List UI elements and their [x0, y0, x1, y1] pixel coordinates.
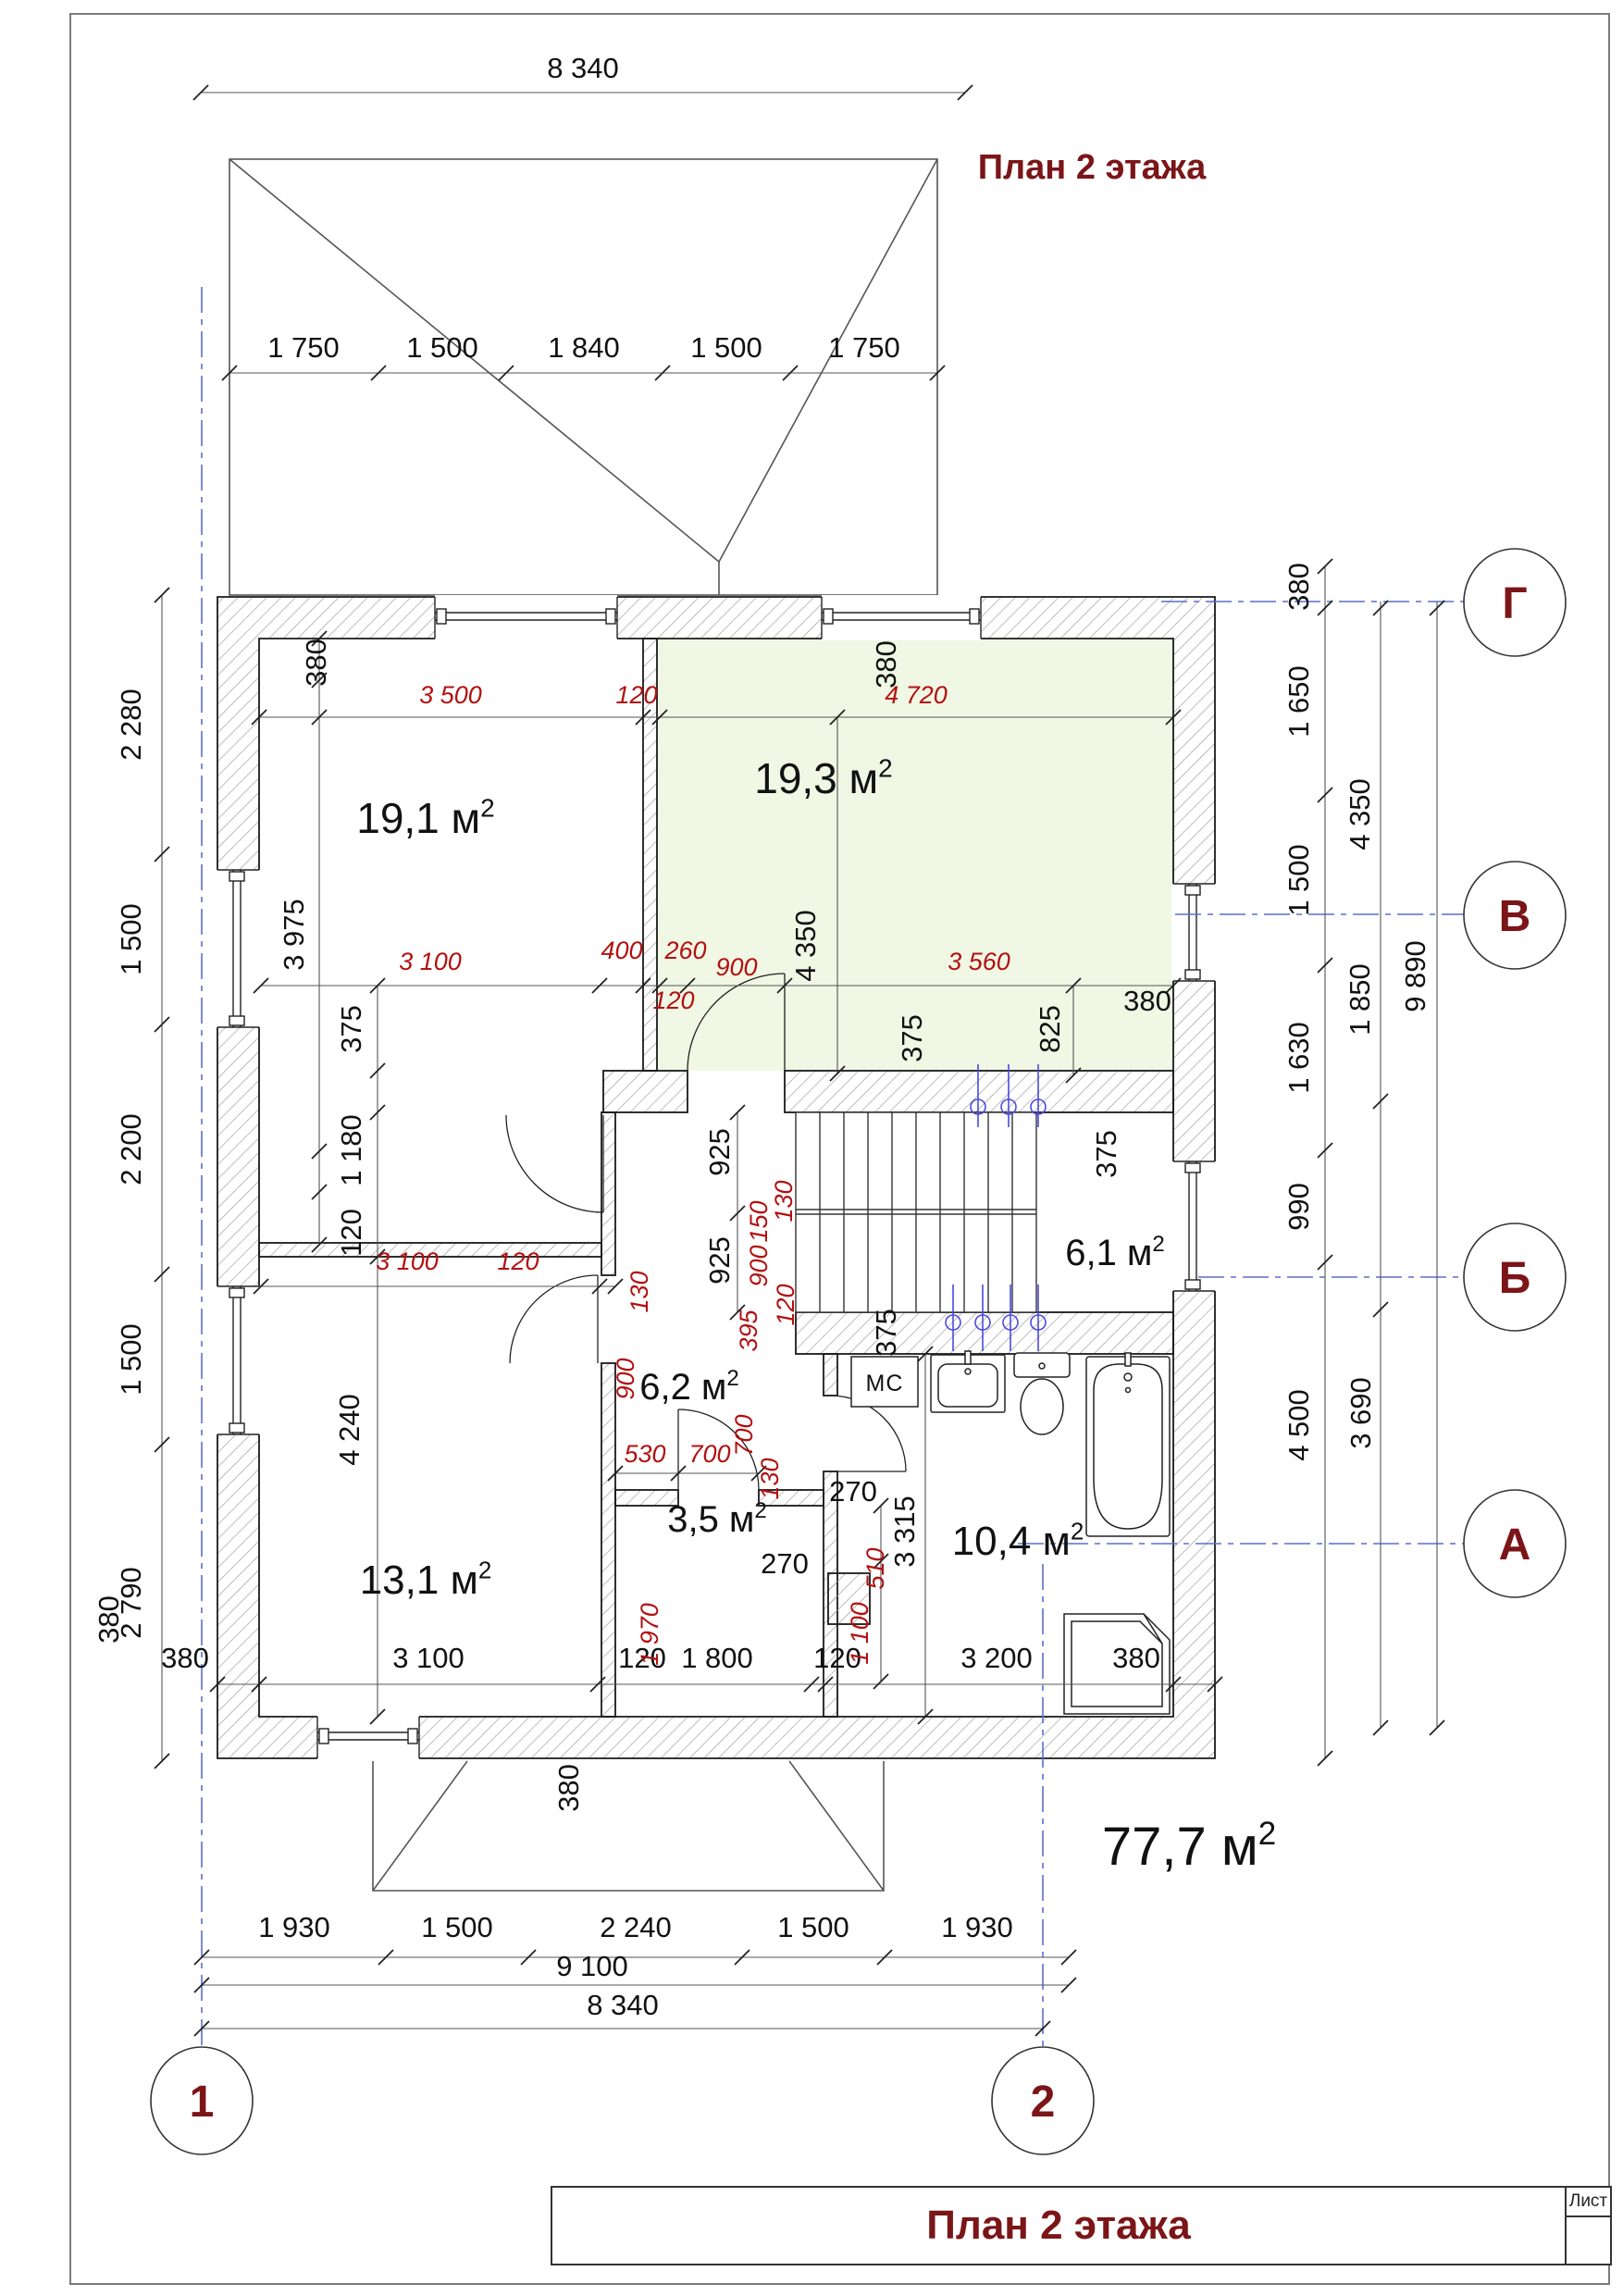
partition-wall — [601, 1363, 615, 1717]
dim-label-red: 120 — [772, 1284, 799, 1325]
dim-label-red: 510 — [861, 1547, 889, 1589]
dim-label: 1 500 — [421, 1911, 493, 1943]
title-block-title: План 2 этажа — [552, 2188, 1565, 2264]
washing-machine-label: МС — [866, 1371, 904, 1396]
dim-label: 375 — [335, 1005, 367, 1053]
window — [437, 609, 446, 624]
dim-label: 4 500 — [1282, 1389, 1315, 1461]
dim-label: 1 500 — [115, 903, 147, 975]
dim-label: 1 500 — [690, 331, 762, 364]
dim-label: 1 930 — [941, 1911, 1013, 1943]
dim-label-red: 530 — [624, 1440, 665, 1468]
dim-label: 8 340 — [587, 1989, 659, 2021]
dim-label-red: 3 100 — [376, 1247, 439, 1275]
dim-label-red: 130 — [756, 1458, 784, 1499]
dim-label: 1 500 — [777, 1911, 849, 1943]
dim-label: 1 630 — [1282, 1022, 1315, 1094]
dim-label: 375 — [896, 1014, 928, 1062]
dim-label-red: 1 100 — [846, 1602, 873, 1665]
dim-label-red: 400 — [601, 937, 642, 964]
dim-label: 9 100 — [556, 1950, 628, 1982]
dim-label-red: 120 — [615, 681, 657, 709]
page-title: План 2 этажа — [944, 148, 1240, 188]
dim-label: 380 — [161, 1642, 209, 1674]
dim-label-red: 900 — [612, 1358, 639, 1399]
dim-label-red: 150 — [745, 1200, 773, 1242]
toilet — [1014, 1353, 1070, 1434]
dim-label-red: 3 500 — [419, 681, 482, 709]
window — [1185, 970, 1200, 979]
window — [216, 1286, 261, 1434]
door-arc — [510, 1275, 598, 1363]
dim-label-red: 1 970 — [636, 1603, 663, 1666]
dim-label-red: 120 — [497, 1247, 539, 1275]
title-block-sheet-cell: Лист — [1565, 2188, 1610, 2264]
dim-label: 380 — [93, 1595, 125, 1644]
dim-label: 4 350 — [789, 910, 822, 982]
dim-label: 375 — [1090, 1130, 1122, 1178]
sheet-label: Лист — [1567, 2188, 1610, 2217]
room-area-label: 6,1 м2 — [1065, 1232, 1165, 1273]
window — [1171, 884, 1217, 981]
dim-label-red: 900 — [745, 1245, 773, 1286]
dim-label: 380 — [1112, 1642, 1160, 1674]
room-area-label: 77,7 м2 — [1102, 1816, 1276, 1877]
window — [824, 609, 833, 624]
dim-label: 1 930 — [258, 1911, 330, 1943]
dim-label: 380 — [1123, 985, 1171, 1017]
dim-label: 3 200 — [960, 1642, 1033, 1674]
window — [435, 595, 617, 640]
floor-plan-drawing: 8 3401 7501 5001 8401 5001 7502 2801 500… — [0, 0, 1623, 2296]
dim-label: 380 — [300, 639, 332, 687]
dim-label: 1 800 — [681, 1642, 753, 1674]
dim-label: 8 340 — [547, 52, 619, 84]
staircase — [796, 1112, 1036, 1312]
bathtub — [1086, 1353, 1170, 1536]
dim-label: 1 840 — [548, 331, 620, 364]
axis-label-2: 2 — [1031, 2078, 1056, 2127]
dim-label: 1 500 — [406, 331, 478, 364]
door-arc — [506, 1115, 603, 1212]
dim-label: 1 750 — [828, 331, 900, 364]
window — [229, 1016, 244, 1025]
room-area-label: 13,1 м2 — [360, 1556, 492, 1603]
window — [216, 870, 261, 1027]
dim-label: 4 240 — [333, 1394, 365, 1466]
dim-label-red: 130 — [770, 1180, 798, 1222]
dim-label-red: 260 — [663, 937, 706, 964]
dim-label: 1 180 — [335, 1114, 367, 1186]
window — [822, 595, 981, 640]
room-area-label: 10,4 м2 — [952, 1517, 1084, 1564]
window — [1185, 1280, 1200, 1289]
dim-label: 1 500 — [115, 1323, 147, 1396]
partition-wall — [824, 1354, 837, 1396]
porch-roof-outline — [373, 1761, 884, 1891]
dim-label: 3 690 — [1344, 1377, 1377, 1449]
dim-label: 1 850 — [1344, 963, 1376, 1036]
dim-label: 9 890 — [1399, 940, 1431, 1012]
axis-label-1: 1 — [190, 2078, 215, 2127]
drawing-sheet: 8 3401 7501 5001 8401 5001 7502 2801 500… — [0, 0, 1623, 2296]
dim-label: 120 — [335, 1209, 367, 1257]
dim-label: 2 280 — [115, 689, 147, 761]
room-area-label: 6,2 м2 — [639, 1366, 739, 1408]
room-area-label: 3,5 м2 — [667, 1498, 767, 1540]
window — [970, 609, 979, 624]
dim-label: 3 100 — [392, 1642, 465, 1674]
sink — [931, 1351, 1005, 1412]
dim-label: 825 — [1034, 1005, 1066, 1053]
window — [1185, 886, 1200, 895]
dim-label: 1 650 — [1282, 665, 1315, 738]
room-area-label: 19,1 м2 — [356, 794, 495, 842]
dim-label: 925 — [703, 1236, 736, 1285]
dim-label-red: 120 — [652, 987, 694, 1014]
dim-label: 375 — [870, 1309, 902, 1357]
interior-wall — [603, 1071, 688, 1112]
room-area-label: 19,3 м2 — [754, 754, 893, 802]
dim-label-red: 700 — [730, 1414, 758, 1456]
dim-label-red: 395 — [735, 1309, 762, 1351]
dim-label: 3 975 — [278, 899, 310, 971]
dim-label-red: 700 — [688, 1440, 730, 1468]
axis-label-А: А — [1499, 1520, 1531, 1570]
window — [319, 1729, 328, 1744]
dim-label: 380 — [552, 1764, 585, 1812]
dim-label: 380 — [1282, 563, 1315, 611]
dim-label: 2 240 — [600, 1911, 672, 1943]
title-block: План 2 этажа Лист — [551, 2186, 1612, 2265]
dim-label: 1 500 — [1282, 844, 1315, 916]
window — [229, 872, 244, 881]
dim-label: 270 — [829, 1475, 877, 1508]
window — [229, 1423, 244, 1433]
dim-label-red: 4 720 — [885, 681, 948, 709]
roof-outline — [229, 159, 937, 595]
dim-label: 925 — [703, 1128, 736, 1176]
dim-label: 4 350 — [1344, 778, 1376, 850]
dim-label: 270 — [761, 1547, 809, 1580]
dim-label-red: 130 — [626, 1271, 653, 1312]
axis-label-Г: Г — [1502, 579, 1527, 628]
window — [317, 1715, 419, 1760]
dim-label: 2 200 — [115, 1113, 147, 1185]
interior-wall — [785, 1071, 1173, 1112]
dim-label-red: 3 100 — [399, 948, 462, 975]
window — [408, 1729, 417, 1744]
window — [229, 1288, 244, 1297]
axis-label-В: В — [1499, 892, 1531, 941]
interior-wall — [796, 1312, 1173, 1354]
dim-label: 990 — [1282, 1183, 1315, 1231]
dim-label-red: 900 — [715, 953, 757, 981]
dim-label: 3 315 — [888, 1496, 921, 1568]
window — [1171, 1161, 1217, 1291]
window — [1185, 1163, 1200, 1173]
axis-label-Б: Б — [1499, 1254, 1531, 1303]
dim-label: 1 750 — [267, 331, 340, 364]
dim-label-red: 3 560 — [948, 948, 1010, 975]
window — [606, 609, 615, 624]
